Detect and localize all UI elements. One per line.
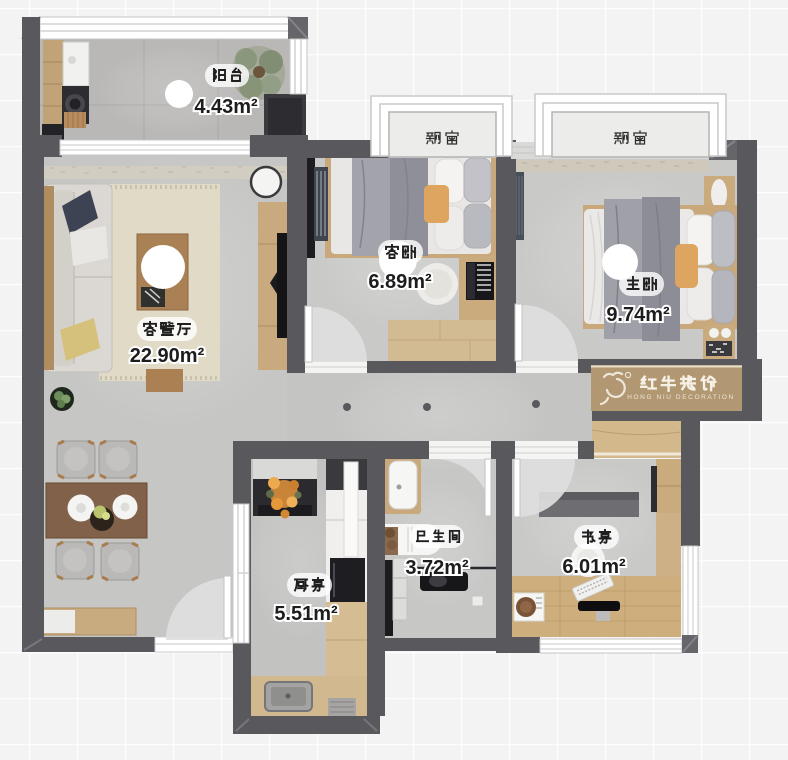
svg-text:5.51m²: 5.51m² [274,603,338,625]
svg-text:6.89m²: 6.89m² [368,271,432,293]
svg-text:4.43m²: 4.43m² [194,96,258,118]
svg-text:22.90m²: 22.90m² [130,345,205,367]
svg-text:6.01m²: 6.01m² [562,556,626,578]
svg-text:3.72m²: 3.72m² [405,557,469,579]
svg-text:9.74m²: 9.74m² [606,304,670,326]
svg-text:HONG NIU DECORATION: HONG NIU DECORATION [627,394,735,401]
